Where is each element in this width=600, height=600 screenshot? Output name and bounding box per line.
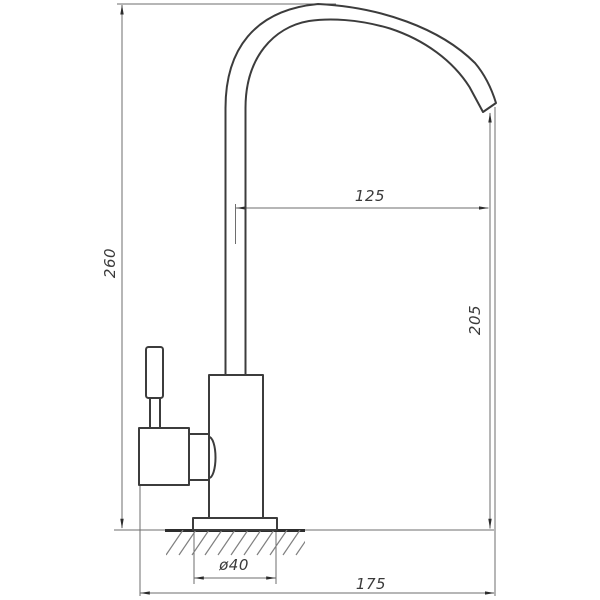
arrowhead-260-top xyxy=(120,5,123,15)
arrowhead-125-left xyxy=(236,206,246,209)
faucet-line-art xyxy=(0,0,600,600)
dimension-lines xyxy=(117,4,495,596)
technical-drawing-canvas: 260 125 205 ø40 175 xyxy=(0,0,600,600)
dim-label-total-depth: 175 xyxy=(349,575,393,593)
arrowhead-175-right xyxy=(485,591,495,594)
dim-label-total-height: 260 xyxy=(101,241,119,285)
arrowhead-260-bottom xyxy=(120,519,123,529)
valve-connector xyxy=(189,434,209,480)
ground-hatching xyxy=(166,530,313,555)
body-column xyxy=(209,375,263,518)
faucet-outline xyxy=(139,4,496,530)
arrowhead-175-left xyxy=(140,591,150,594)
arrowhead-d40-left xyxy=(194,576,204,579)
dim-label-spout-reach: 125 xyxy=(348,187,392,205)
arrowhead-205-bottom xyxy=(488,519,491,529)
handle-stem xyxy=(150,398,160,428)
ground-surface xyxy=(114,530,494,555)
base-plate xyxy=(193,518,277,530)
dim-label-outlet-height: 205 xyxy=(466,298,484,342)
arrowhead-d40-right xyxy=(266,576,276,579)
arrowhead-205-top xyxy=(488,113,491,123)
dim-label-base-diameter: ø40 xyxy=(212,556,256,574)
handle-lever xyxy=(146,347,163,398)
valve-body xyxy=(139,428,189,485)
arrowhead-125-right xyxy=(479,206,489,209)
